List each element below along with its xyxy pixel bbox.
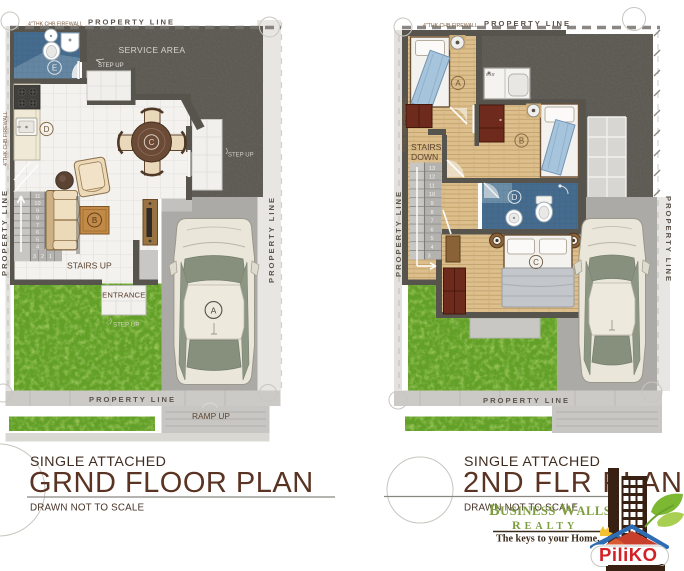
- svg-text:12: 12: [429, 175, 435, 181]
- svg-text:PROPERTY LINE: PROPERTY LINE: [664, 196, 673, 283]
- svg-text:8: 8: [36, 216, 39, 222]
- svg-text:STEP UP: STEP UP: [113, 322, 139, 329]
- svg-text:GRND FLOOR PLAN: GRND FLOOR PLAN: [29, 467, 314, 499]
- svg-text:13: 13: [429, 166, 435, 172]
- svg-text:6'x6': 6'x6': [486, 72, 495, 77]
- svg-text:ENTRANCE: ENTRANCE: [102, 291, 145, 300]
- svg-text:9: 9: [430, 201, 433, 207]
- svg-text:3: 3: [33, 254, 36, 260]
- svg-text:4: 4: [430, 245, 433, 251]
- svg-text:7: 7: [430, 219, 433, 225]
- svg-text:6: 6: [36, 230, 39, 236]
- svg-text:B: B: [519, 137, 524, 146]
- svg-text:PROPERTY LINE: PROPERTY LINE: [484, 19, 571, 28]
- svg-text:11: 11: [35, 194, 41, 200]
- svg-text:10: 10: [429, 192, 435, 198]
- svg-text:STAIRS: STAIRS: [411, 142, 442, 152]
- svg-text:The keys to your Home.: The keys to your Home.: [496, 534, 600, 545]
- svg-text:2: 2: [41, 254, 44, 260]
- svg-text:PiliKO: PiliKO: [599, 544, 658, 565]
- svg-text:10: 10: [34, 201, 40, 207]
- svg-text:4: 4: [36, 245, 39, 251]
- svg-text:PROPERTY LINE: PROPERTY LINE: [0, 189, 9, 276]
- svg-text:STEP UP: STEP UP: [228, 153, 254, 159]
- svg-text:4"THK CHB FIREWALL: 4"THK CHB FIREWALL: [402, 97, 408, 152]
- svg-text:PROPERTY LINE: PROPERTY LINE: [394, 190, 403, 277]
- svg-text:BUSINESS WALLS: BUSINESS WALLS: [489, 502, 611, 519]
- svg-text:PROPERTY LINE: PROPERTY LINE: [88, 18, 175, 27]
- svg-text:C: C: [533, 258, 539, 267]
- svg-text:5: 5: [430, 236, 433, 242]
- svg-text:STEP UP: STEP UP: [98, 63, 124, 69]
- svg-text:3: 3: [427, 254, 430, 260]
- svg-text:DRAWN NOT TO SCALE: DRAWN NOT TO SCALE: [30, 503, 145, 514]
- svg-text:A: A: [211, 305, 217, 315]
- svg-text:B: B: [92, 216, 97, 225]
- svg-text:2ND FLR PLAN: 2ND FLR PLAN: [463, 467, 683, 499]
- svg-text:1: 1: [49, 254, 52, 260]
- svg-text:PROPERTY LINE: PROPERTY LINE: [483, 396, 570, 405]
- svg-text:DOWN: DOWN: [411, 152, 438, 162]
- svg-text:A: A: [455, 79, 461, 88]
- svg-text:REALTY: REALTY: [512, 518, 578, 532]
- svg-text:RAMP UP: RAMP UP: [192, 411, 230, 421]
- svg-text:D: D: [44, 125, 50, 134]
- svg-text:7: 7: [36, 223, 39, 229]
- svg-text:8: 8: [430, 210, 433, 216]
- svg-text:SERVICE AREA: SERVICE AREA: [118, 45, 185, 55]
- svg-text:4"THK CHB FIREWALL: 4"THK CHB FIREWALL: [3, 111, 9, 166]
- svg-text:STAIRS UP: STAIRS UP: [67, 261, 112, 271]
- svg-text:4"THK CHB FIREWALL: 4"THK CHB FIREWALL: [28, 22, 83, 28]
- svg-text:9: 9: [36, 208, 39, 214]
- svg-text:11: 11: [429, 183, 435, 189]
- svg-text:5: 5: [36, 237, 39, 243]
- svg-text:4"THK CHB FIREWALL: 4"THK CHB FIREWALL: [423, 23, 478, 29]
- svg-text:PROPERTY LINE: PROPERTY LINE: [267, 196, 276, 283]
- svg-text:E: E: [52, 64, 57, 73]
- svg-text:6: 6: [430, 227, 433, 233]
- svg-text:PROPERTY LINE: PROPERTY LINE: [89, 395, 176, 404]
- svg-text:C: C: [149, 138, 155, 147]
- svg-text:D: D: [512, 193, 518, 202]
